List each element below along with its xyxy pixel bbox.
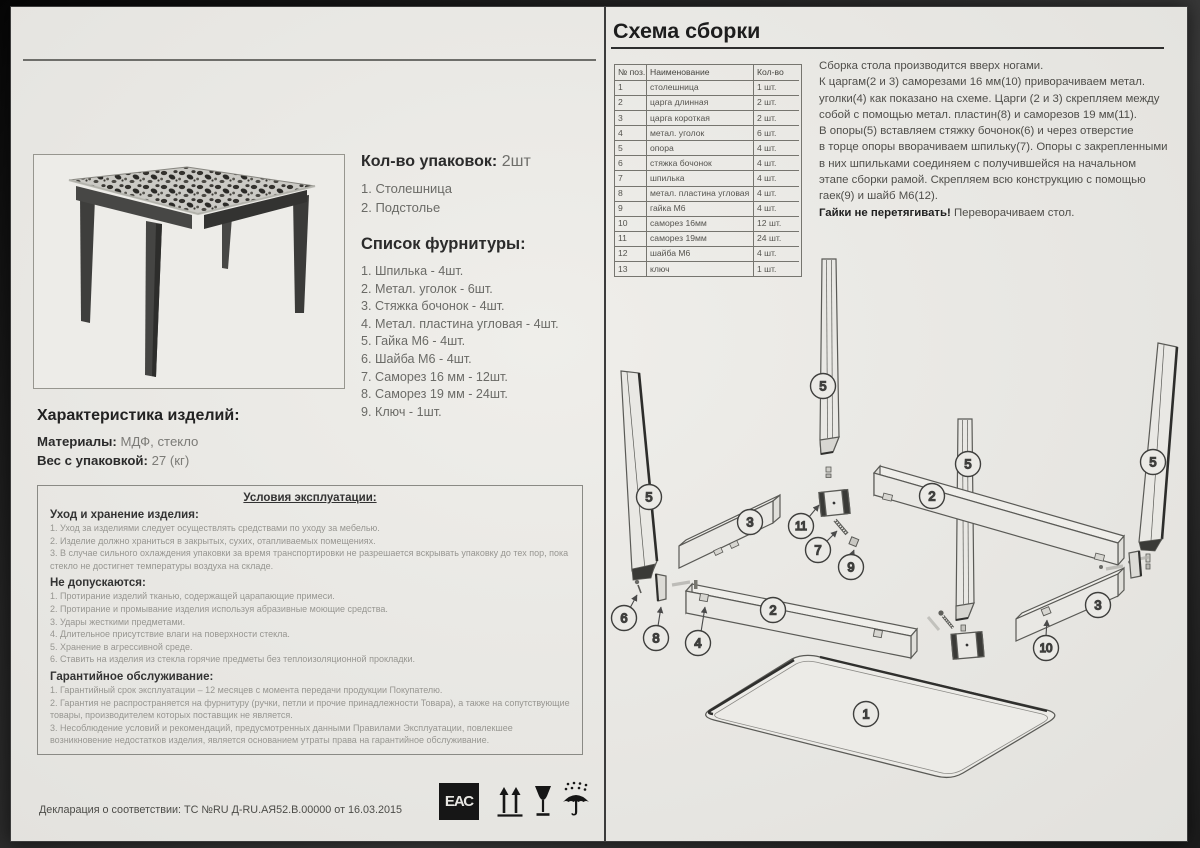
- hardware-item: 5. Гайка М6 - 4шт.: [361, 333, 559, 351]
- callout-5c: 5: [956, 452, 981, 477]
- callout-11: 11: [789, 514, 814, 539]
- instruction-line: В опоры(5) вставляем стяжку бочонок(6) и…: [819, 123, 1193, 139]
- callout-7: 7: [806, 538, 831, 563]
- hardware-item: 8. Саморез 19 мм - 24шт.: [361, 386, 559, 404]
- hardware-item: 9. Ключ - 1шт.: [361, 404, 559, 422]
- part-name: метал. пластина угловая: [647, 187, 754, 202]
- eac-mark-icon: ЕАС: [439, 783, 479, 820]
- condition-item: 1. Протирание изделий тканью, содержащей…: [50, 590, 570, 603]
- hardware-title: Список фурнитуры:: [361, 235, 526, 254]
- parts-table-row: 4 метал. уголок 6 шт.: [615, 126, 801, 141]
- part-position: 1: [615, 81, 647, 96]
- condition-item: 4. Длительное присутствие влаги на повер…: [50, 628, 570, 641]
- condition-item: 2. Протирание и промывание изделия испол…: [50, 603, 570, 616]
- svg-text:5: 5: [1149, 455, 1156, 470]
- this-side-up-icon: [495, 785, 525, 818]
- condition-item: 3. В случае сильного охлаждения упаковки…: [50, 547, 570, 572]
- instruction-line: гаек(9) и шайб М6(12).: [819, 188, 1193, 204]
- diagram-rail-short-upper: [679, 495, 780, 568]
- part-position: 6: [615, 156, 647, 171]
- part-qty: 12 шт.: [754, 217, 799, 232]
- parts-table-row: 1 столешница 1 шт.: [615, 81, 801, 96]
- product-photo: [33, 154, 345, 389]
- part-qty: 4 шт.: [754, 156, 799, 171]
- hardware-item: 6. Шайба М6 - 4шт.: [361, 351, 559, 369]
- hardware-item: 7. Саморез 16 мм - 12шт.: [361, 369, 559, 387]
- header-rule: [23, 59, 596, 61]
- svg-text:5: 5: [819, 379, 826, 394]
- parts-table-row: 9 гайка М6 4 шт.: [615, 202, 801, 217]
- svg-text:8: 8: [652, 631, 659, 646]
- parts-table-row: 11 саморез 19мм 24 шт.: [615, 232, 801, 247]
- svg-text:1: 1: [862, 707, 869, 722]
- conditions-box: Условия эксплуатации: Уход и хранение из…: [37, 485, 583, 755]
- svg-text:6: 6: [620, 611, 627, 626]
- svg-text:5: 5: [964, 457, 971, 472]
- characteristic-row: Вес с упаковкой: 27 (кг): [37, 452, 198, 471]
- svg-text:10: 10: [1040, 643, 1053, 655]
- diagram-leg-left: [621, 371, 657, 580]
- hardware-list: 1. Шпилька - 4шт.2. Метал. уголок - 6шт.…: [361, 263, 559, 421]
- part-name: саморез 19мм: [647, 232, 754, 247]
- table-photo-illustration: [34, 155, 342, 386]
- part-qty: 2 шт.: [754, 96, 799, 111]
- part-name: гайка М6: [647, 202, 754, 217]
- part-qty: 2 шт.: [754, 111, 799, 126]
- diagram-tabletop: [706, 655, 1055, 777]
- characteristic-row: Материалы: МДФ, стекло: [37, 433, 198, 452]
- photographed-assembly-instruction: { "left": { "packages": { "label": "Кол-…: [0, 0, 1200, 848]
- parts-table-header: № поз. Наименование Кол-во: [615, 65, 801, 81]
- callout-1: 1: [854, 702, 879, 727]
- part-position: 5: [615, 141, 647, 156]
- callout-3a: 3: [738, 510, 763, 535]
- diagram-stud-nut: [835, 520, 859, 547]
- callout-2b: 2: [761, 598, 786, 623]
- col-header-pos: № поз.: [615, 65, 647, 81]
- packages-list: 1. Столешница2. Подстолье: [361, 179, 452, 217]
- fragile-icon: [532, 784, 554, 818]
- title-underline: [611, 47, 1164, 49]
- part-name: шпилька: [647, 171, 754, 186]
- warning-rest: Переворачиваем стол.: [951, 207, 1075, 219]
- characteristics-rows: Материалы: МДФ, стекло Вес с упаковкой: …: [37, 433, 198, 470]
- exploded-assembly-diagram: 1 2 2 3 3 4 5 5 5 5 6 7 8 9 10 11: [606, 251, 1191, 801]
- hardware-item: 2. Метал. уголок - 6шт.: [361, 281, 559, 299]
- condition-item: 1. Уход за изделиями следует осуществлят…: [50, 522, 570, 535]
- callout-5b: 5: [637, 485, 662, 510]
- characteristic-value: МДФ, стекло: [120, 434, 198, 449]
- diagram-rail-long-left: [686, 584, 917, 658]
- part-qty: 4 шт.: [754, 202, 799, 217]
- parts-table-row: 6 стяжка бочонок 4 шт.: [615, 156, 801, 171]
- callout-6: 6: [612, 606, 637, 631]
- part-position: 8: [615, 187, 647, 202]
- callout-5d: 5: [1141, 450, 1166, 475]
- condition-item: 3. Удары жесткими предметами.: [50, 616, 570, 629]
- condition-item: 5. Хранение в агрессивной среде.: [50, 641, 570, 654]
- callout-10: 10: [1034, 636, 1059, 661]
- characteristic-label: Материалы:: [37, 434, 117, 449]
- instruction-lines: Сборка стола производится вверх ногами.К…: [819, 58, 1193, 205]
- page-title: Схема сборки: [613, 19, 760, 44]
- instruction-line: уголки(4) как показано на схеме. Царги (…: [819, 91, 1193, 107]
- conditions-forbidden-items: 1. Протирание изделий тканью, содержащей…: [50, 590, 570, 666]
- instruction-line: в торце опоры вворачиваем шпильку(7). Оп…: [819, 139, 1193, 155]
- instruction-line: Сборка стола производится вверх ногами.: [819, 58, 1193, 74]
- parts-table-row: 7 шпилька 4 шт.: [615, 171, 801, 186]
- col-header-name: Наименование: [647, 65, 754, 81]
- part-qty: 1 шт.: [754, 81, 799, 96]
- instruction-line: собой с помощью метал. пластин(8) и само…: [819, 107, 1193, 123]
- hardware-item: 4. Метал. пластина угловая - 4шт.: [361, 316, 559, 334]
- diagram-barrel-nut-top: [819, 489, 850, 516]
- package-item: 1. Столешница: [361, 179, 452, 198]
- svg-text:2: 2: [769, 603, 776, 618]
- conditions-care-heading: Уход и хранение изделия:: [50, 509, 570, 521]
- packages-label: Кол-во упаковок:: [361, 153, 497, 170]
- parts-table-body: 1 столешница 1 шт. 2 царга длинная 2 шт.…: [615, 81, 801, 276]
- svg-text:9: 9: [847, 560, 854, 575]
- instruction-warning: Гайки не перетягивать! Переворачиваем ст…: [819, 205, 1193, 221]
- svg-text:2: 2: [928, 489, 935, 504]
- svg-text:4: 4: [694, 636, 701, 651]
- part-position: 7: [615, 171, 647, 186]
- col-header-qty: Кол-во: [754, 65, 799, 81]
- part-qty: 4 шт.: [754, 187, 799, 202]
- svg-text:5: 5: [645, 490, 652, 505]
- parts-table-row: 8 метал. пластина угловая 4 шт.: [615, 187, 801, 202]
- callout-2a: 2: [920, 484, 945, 509]
- part-name: царга короткая: [647, 111, 754, 126]
- eac-letters: ЕАС: [445, 793, 473, 810]
- callout-8: 8: [644, 626, 669, 651]
- condition-item: 6. Ставить на изделия из стекла горячие …: [50, 653, 570, 666]
- conditions-care-items: 1. Уход за изделиями следует осуществлят…: [50, 522, 570, 572]
- part-position: 9: [615, 202, 647, 217]
- part-qty: 6 шт.: [754, 126, 799, 141]
- diagram-leg-top: [820, 259, 839, 478]
- callout-3b: 3: [1086, 593, 1111, 618]
- svg-text:3: 3: [746, 515, 753, 530]
- part-position: 11: [615, 232, 647, 247]
- warning-bold: Гайки не перетягивать!: [819, 207, 951, 219]
- instruction-line: в них шпильками соединяем с получившейся…: [819, 156, 1193, 172]
- callout-4: 4: [686, 631, 711, 656]
- parts-table-row: 10 саморез 16мм 12 шт.: [615, 217, 801, 232]
- conditions-warranty-heading: Гарантийное обслуживание:: [50, 671, 570, 683]
- part-name: стяжка бочонок: [647, 156, 754, 171]
- part-qty: 4 шт.: [754, 171, 799, 186]
- parts-table-row: 3 царга короткая 2 шт.: [615, 111, 801, 126]
- part-name: столешница: [647, 81, 754, 96]
- instruction-line: этапе сборки рамой. Скрепляем всю констр…: [819, 172, 1193, 188]
- hardware-item: 3. Стяжка бочонок - 4шт.: [361, 298, 559, 316]
- instruction-sheet: Кол-во упаковок: 2шт 1. Столешница2. Под…: [10, 6, 1188, 842]
- part-position: 4: [615, 126, 647, 141]
- part-position: 10: [615, 217, 647, 232]
- condition-item: 3. Несоблюдение условий и рекомендаций, …: [50, 722, 570, 747]
- condition-item: 2. Изделие должно храниться в закрытых, …: [50, 535, 570, 548]
- part-name: метал. уголок: [647, 126, 754, 141]
- conditions-forbidden-heading: Не допускаются:: [50, 577, 570, 589]
- table-legs: [80, 195, 309, 377]
- parts-table-row: 5 опора 4 шт.: [615, 141, 801, 156]
- instruction-line: К царгам(2 и 3) саморезами 16 мм(10) при…: [819, 74, 1193, 90]
- diagram-leg-middle: [956, 419, 974, 631]
- part-position: 3: [615, 111, 647, 126]
- svg-text:3: 3: [1094, 598, 1101, 613]
- declaration-text: Декларация о соответствии: ТС №RU Д-RU.А…: [39, 804, 402, 816]
- svg-text:7: 7: [814, 543, 821, 558]
- package-item: 2. Подстолье: [361, 198, 452, 217]
- part-name: царга длинная: [647, 96, 754, 111]
- callout-5a: 5: [811, 374, 836, 399]
- conditions-warranty-items: 1. Гарантийный срок эксплуатации – 12 ме…: [50, 684, 570, 747]
- hardware-item: 1. Шпилька - 4шт.: [361, 263, 559, 281]
- svg-text:11: 11: [795, 521, 807, 533]
- condition-item: 2. Гарантия не распространяется на фурни…: [50, 697, 570, 722]
- parts-table: № поз. Наименование Кол-во 1 столешница …: [614, 64, 802, 277]
- characteristics-title: Характеристика изделий:: [37, 407, 240, 425]
- part-name: саморез 16мм: [647, 217, 754, 232]
- part-qty: 24 шт.: [754, 232, 799, 247]
- parts-table-row: 2 царга длинная 2 шт.: [615, 96, 801, 111]
- characteristic-label: Вес с упаковкой:: [37, 453, 148, 468]
- packages-value: 2шт: [502, 153, 531, 170]
- part-name: опора: [647, 141, 754, 156]
- part-qty: 4 шт.: [754, 141, 799, 156]
- part-position: 2: [615, 96, 647, 111]
- characteristic-value: 27 (кг): [152, 453, 190, 468]
- callout-9: 9: [839, 555, 864, 580]
- packages-heading: Кол-во упаковок: 2шт: [361, 153, 531, 171]
- conditions-title: Условия эксплуатации:: [50, 492, 570, 504]
- assembly-instructions: Сборка стола производится вверх ногами.К…: [819, 58, 1193, 221]
- condition-item: 1. Гарантийный срок эксплуатации – 12 ме…: [50, 684, 570, 697]
- keep-dry-icon: [560, 781, 592, 818]
- diagram-rail-long-right: [874, 466, 1149, 565]
